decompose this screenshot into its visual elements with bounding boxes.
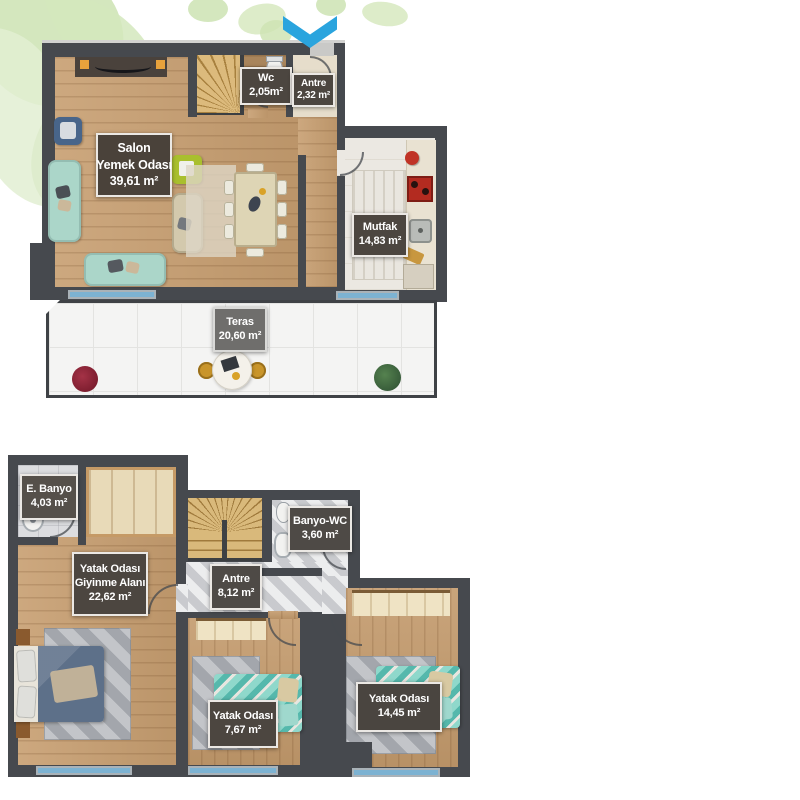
room-area: 3,60 m² (302, 529, 339, 543)
stairs-edge (188, 558, 262, 561)
sofa-pillow (107, 259, 124, 273)
wall-ebanyo-bottom (10, 537, 58, 545)
dining-chair (246, 248, 264, 257)
stove-burner (422, 188, 429, 195)
bedroom3-wardrobe (352, 590, 450, 616)
bedroom2-wardrobe (196, 618, 266, 640)
bed-pillow (277, 703, 299, 727)
room-area: 20,60 m² (219, 330, 261, 344)
bed-pillow (277, 677, 299, 703)
sofa-pillow (125, 261, 140, 274)
sink-drain (418, 228, 423, 233)
wall-banyowc-bottom (262, 568, 322, 576)
bed-throw (50, 665, 98, 703)
plant-red (72, 366, 98, 392)
bedroom2-window (188, 766, 278, 775)
kettle-red (405, 151, 419, 165)
kitchen-cabinet (403, 264, 434, 289)
room-name: Salon (117, 140, 150, 157)
wall-salon-corridor (298, 155, 306, 287)
room-area: 22,62 m² (89, 591, 131, 605)
bedroom3-window (352, 768, 440, 777)
master-window (36, 766, 132, 775)
room-area: 4,03 m² (31, 497, 68, 511)
room-label-bedroom3: Yatak Odası 14,45 m² (356, 682, 442, 732)
master-wardrobe (86, 467, 176, 537)
room-area: 14,83 m² (359, 235, 401, 249)
dining-chair (277, 202, 287, 217)
room-label-banyowc: Banyo-WC 3,60 m² (288, 506, 352, 552)
room-name: Yatak Odası (213, 710, 273, 724)
room-name: Yemek Odası (96, 157, 172, 174)
floor-plan-canvas: Salon Yemek Odası 39,61 m² Wc 2,05m² Ant… (0, 0, 800, 800)
room-label-antre-upper: Antre 2,32 m² (292, 73, 335, 107)
armchair-blue-seat (60, 122, 76, 139)
room-label-teras: Teras 20,60 m² (213, 307, 267, 352)
bed-pillow (16, 685, 37, 718)
dining-chair (277, 180, 287, 195)
tv-screen (95, 60, 151, 73)
tv-unit-accent (156, 60, 165, 69)
room-area: 39,61 m² (110, 173, 158, 190)
dining-chair (224, 180, 234, 195)
leaf-decoration (316, 0, 346, 16)
room-name: Teras (226, 316, 254, 330)
room-name: Giyinme Alanı (75, 577, 145, 591)
salon-window (68, 290, 156, 299)
dining-chair (246, 163, 264, 172)
room-name: Yatak Odası (369, 693, 429, 707)
room-label-bedroom2: Yatak Odası 7,67 m² (208, 700, 278, 748)
leaf-decoration (361, 0, 410, 29)
room-label-wc: Wc 2,05m² (240, 67, 292, 105)
kitchen-window (336, 291, 399, 300)
room-name: E. Banyo (26, 483, 71, 497)
room-area: 14,45 m² (378, 707, 420, 721)
room-name: Antre (222, 573, 250, 587)
wall-ebanyo-right (78, 455, 86, 545)
stairs-edge (197, 113, 240, 115)
dining-chair (224, 202, 234, 217)
table-decor (259, 188, 266, 195)
bed-pillow (16, 649, 37, 682)
room-name: Wc (258, 72, 274, 86)
tv-unit-accent (80, 60, 89, 69)
upper-floor-structure (30, 243, 44, 300)
room-area: 2,05m² (249, 86, 283, 100)
stairs-rail (222, 520, 227, 560)
dining-chair (224, 224, 234, 239)
stove-burner (411, 181, 418, 188)
terrace-table-item (232, 372, 240, 380)
toilet-tank (266, 56, 283, 62)
stairs-upper (197, 55, 240, 115)
dining-chair (277, 224, 287, 239)
room-area: 7,67 m² (225, 724, 262, 738)
sofa-pillow (57, 199, 72, 212)
leaf-decoration (188, 0, 228, 22)
room-label-ebanyo: E. Banyo 4,03 m² (20, 474, 78, 520)
antre-tongue-floor (322, 576, 348, 614)
room-label-mutfak: Mutfak 14,83 m² (352, 213, 408, 257)
room-label-master: Yatak Odası Giyinme Alanı 22,62 m² (72, 552, 148, 616)
nightstand (16, 629, 30, 645)
wall-stairs (188, 55, 197, 117)
plant-green (374, 364, 401, 391)
wc-door-opening (248, 108, 268, 118)
nightstand (16, 722, 30, 738)
room-name: Yatak Odası (80, 563, 140, 577)
stove-red (407, 176, 433, 202)
room-area: 2,32 m² (297, 90, 330, 103)
room-name: Antre (301, 78, 326, 91)
room-name: Mutfak (363, 221, 397, 235)
bedroom3-wall-notch (346, 742, 372, 767)
room-name: Banyo-WC (293, 515, 347, 529)
room-label-salon: Salon Yemek Odası 39,61 m² (96, 133, 172, 197)
room-label-antre-lower: Antre 8,12 m² (210, 564, 262, 610)
room-area: 8,12 m² (218, 587, 255, 601)
